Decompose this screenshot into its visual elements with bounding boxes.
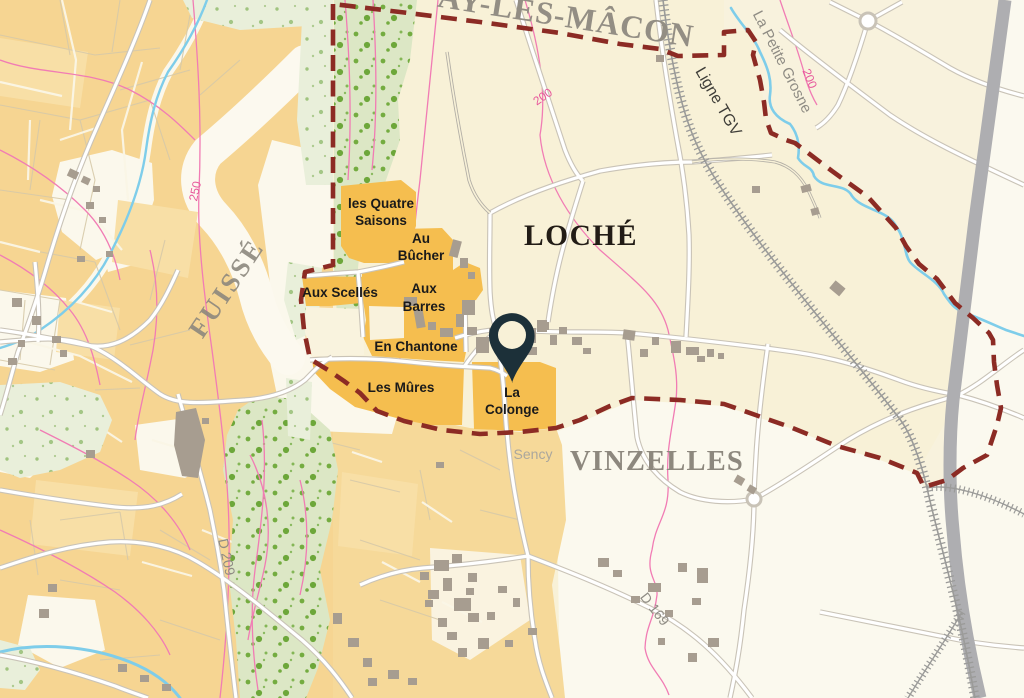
svg-text:Bûcher: Bûcher [398, 248, 445, 263]
svg-text:Sency: Sency [514, 446, 553, 462]
svg-text:Barres: Barres [403, 299, 446, 314]
svg-text:VINZELLES: VINZELLES [570, 446, 744, 477]
svg-text:Colonge: Colonge [485, 402, 539, 417]
svg-text:En Chantone: En Chantone [374, 339, 458, 354]
svg-text:La: La [504, 385, 520, 400]
svg-text:LOCHÉ: LOCHÉ [524, 219, 638, 252]
svg-text:Saisons: Saisons [355, 213, 407, 228]
svg-text:Aux: Aux [411, 281, 437, 296]
svg-text:Aux Scellés: Aux Scellés [302, 285, 378, 300]
svg-text:les Quatre: les Quatre [348, 196, 415, 211]
svg-text:Au: Au [412, 231, 430, 246]
svg-text:Les Mûres: Les Mûres [368, 380, 435, 395]
